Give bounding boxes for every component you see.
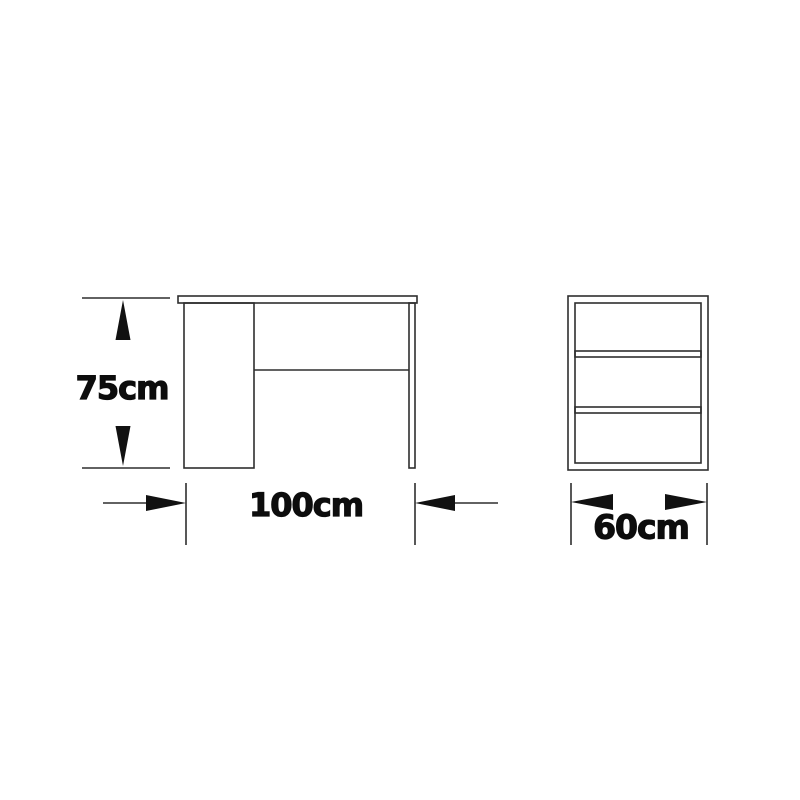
side-view-shelf-upper <box>575 351 701 357</box>
width-dimension-label: 100cm <box>249 486 363 524</box>
side-view-outer-frame <box>568 296 708 470</box>
height-dim-up-arrow <box>116 300 131 340</box>
desk-top-panel <box>178 296 417 303</box>
furniture-dimension-diagram: 75cm 100cm 60cm <box>0 0 800 800</box>
height-dimension-label: 75cm <box>76 369 169 407</box>
side-view-shelf-lower <box>575 407 701 413</box>
height-dim-down-arrow <box>116 426 131 466</box>
width-dim-right-arrow <box>415 495 455 511</box>
desk-right-leg <box>409 303 415 468</box>
depth-dimension-label: 60cm <box>593 508 689 547</box>
desk-left-pedestal <box>184 303 254 468</box>
width-dim-left-arrow <box>146 495 186 511</box>
side-view-inner-frame <box>575 303 701 463</box>
